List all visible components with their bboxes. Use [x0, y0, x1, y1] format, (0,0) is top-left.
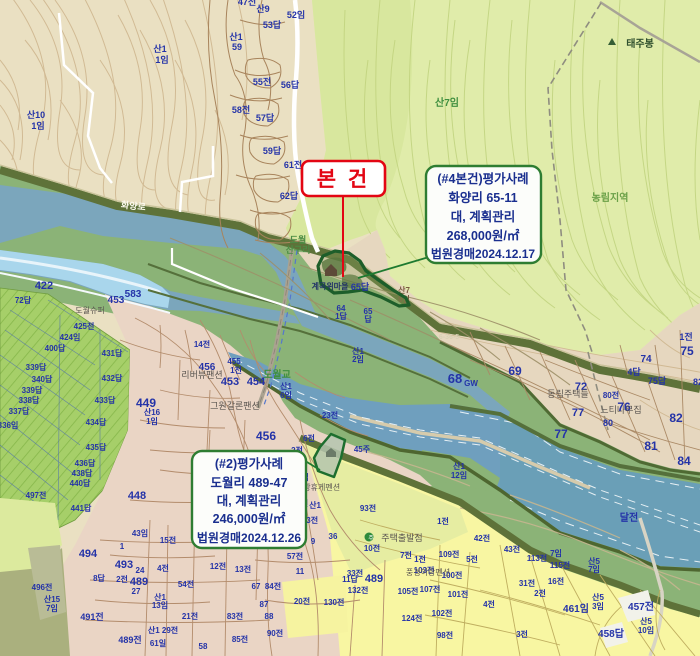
svg-text:산1: 산1 [229, 31, 242, 42]
svg-text:101전: 101전 [448, 589, 469, 599]
svg-text:(#4본건)평가사례: (#4본건)평가사례 [437, 171, 528, 186]
svg-text:31전: 31전 [519, 578, 535, 588]
svg-text:42전: 42전 [474, 533, 490, 543]
svg-text:43전: 43전 [504, 544, 520, 554]
svg-text:84전: 84전 [265, 581, 281, 591]
svg-text:69: 69 [508, 364, 522, 378]
svg-text:82: 82 [693, 377, 700, 387]
svg-text:434답: 434답 [86, 417, 107, 427]
svg-text:58: 58 [199, 642, 208, 651]
svg-text:2임: 2임 [352, 354, 364, 364]
svg-text:457전: 457전 [628, 600, 654, 613]
svg-text:1전: 1전 [679, 331, 692, 342]
svg-text:61일: 61일 [150, 638, 166, 648]
svg-text:8답: 8답 [93, 573, 105, 583]
svg-text:491전: 491전 [80, 611, 103, 622]
svg-text:계곡위마을: 계곡위마을 [312, 281, 349, 291]
svg-text:45주: 45주 [354, 445, 371, 454]
svg-text:497전: 497전 [26, 490, 47, 500]
svg-text:도월교: 도월교 [263, 369, 291, 381]
svg-text:431답: 431답 [102, 348, 123, 358]
svg-text:68: 68 [448, 371, 462, 386]
svg-text:438답: 438답 [72, 468, 93, 478]
svg-text:도월리 489-47: 도월리 489-47 [211, 475, 288, 490]
svg-text:12임: 12임 [451, 470, 467, 480]
svg-text:(#2)평가사례: (#2)평가사례 [215, 456, 283, 471]
svg-text:82: 82 [669, 411, 683, 425]
svg-text:43임: 43임 [132, 528, 148, 538]
svg-text:9: 9 [311, 537, 316, 546]
svg-text:268,000원/㎡: 268,000원/㎡ [447, 228, 520, 243]
svg-text:336임: 336임 [0, 420, 18, 430]
svg-text:산16: 산16 [144, 407, 161, 417]
svg-text:달전: 달전 [620, 511, 638, 524]
svg-text:105전: 105전 [398, 586, 419, 596]
svg-text:산구리: 산구리 [286, 244, 311, 255]
svg-text:7임: 7임 [588, 564, 600, 574]
svg-text:36: 36 [329, 532, 338, 541]
svg-text:74: 74 [640, 354, 652, 365]
svg-text:83전: 83전 [227, 611, 243, 621]
svg-text:80전: 80전 [603, 390, 619, 400]
svg-text:2전: 2전 [534, 588, 546, 598]
svg-text:1임: 1임 [155, 54, 168, 65]
svg-text:3전: 3전 [516, 629, 528, 639]
svg-text:246,000원/㎡: 246,000원/㎡ [213, 511, 286, 526]
svg-text:107전: 107전 [420, 584, 441, 594]
svg-text:85전: 85전 [232, 634, 248, 644]
svg-text:432답: 432답 [102, 373, 123, 383]
svg-text:GW: GW [464, 379, 478, 388]
svg-text:496전: 496전 [32, 582, 53, 592]
svg-text:400답: 400답 [45, 343, 66, 353]
svg-text:453: 453 [221, 376, 239, 388]
svg-text:태주봉: 태주봉 [626, 37, 654, 50]
svg-text:461임: 461임 [563, 602, 589, 615]
svg-text:57전: 57전 [287, 551, 303, 561]
svg-text:493: 493 [115, 559, 133, 571]
svg-text:57답: 57답 [256, 112, 275, 123]
svg-text:88: 88 [265, 612, 274, 621]
svg-text:124전: 124전 [402, 613, 423, 623]
svg-text:337답: 337답 [9, 406, 30, 416]
svg-text:62답: 62답 [280, 190, 299, 201]
svg-text:느티나무집: 느티나무집 [600, 404, 641, 415]
svg-text:453: 453 [108, 295, 125, 306]
svg-text:27: 27 [132, 587, 141, 596]
svg-text:77: 77 [554, 427, 568, 441]
svg-text:산10: 산10 [27, 109, 45, 120]
svg-text:339답: 339답 [22, 385, 43, 395]
svg-text:10임: 10임 [638, 625, 654, 635]
svg-text:338답: 338답 [19, 395, 40, 405]
svg-text:20전: 20전 [294, 596, 310, 606]
svg-text:84: 84 [677, 454, 691, 468]
svg-text:12전: 12전 [210, 561, 226, 571]
svg-text:6-36-5: 6-36-5 [439, 334, 459, 341]
svg-text:425전: 425전 [74, 321, 95, 331]
svg-text:2전: 2전 [116, 574, 128, 584]
svg-text:1전: 1전 [230, 365, 242, 375]
svg-text:10전: 10전 [364, 543, 380, 553]
svg-text:81: 81 [644, 439, 658, 453]
svg-text:1: 1 [120, 542, 125, 551]
svg-text:80: 80 [603, 418, 613, 428]
svg-text:도월슈퍼: 도월슈퍼 [75, 305, 104, 315]
svg-text:448: 448 [128, 490, 146, 502]
svg-text:도월: 도월 [290, 234, 307, 245]
svg-text:주택출발점: 주택출발점 [381, 532, 422, 543]
svg-text:1전: 1전 [437, 516, 449, 526]
svg-text:93전: 93전 [360, 503, 376, 513]
svg-text:대, 계획관리: 대, 계획관리 [217, 493, 281, 508]
svg-text:5전: 5전 [466, 554, 478, 564]
svg-text:산1 29전: 산1 29전 [148, 625, 178, 635]
svg-text:4답: 4답 [627, 366, 641, 377]
svg-text:그원갈론팬션: 그원갈론팬션 [210, 401, 260, 411]
svg-text:13전: 13전 [235, 564, 251, 574]
svg-text:산5: 산5 [592, 592, 604, 602]
svg-text:산7임: 산7임 [435, 96, 459, 109]
svg-text:52임: 52임 [287, 9, 305, 20]
svg-text:6전: 6전 [303, 433, 315, 443]
svg-text:리버뷰팬션: 리버뷰팬션 [181, 370, 222, 380]
svg-text:본 건: 본 건 [317, 168, 370, 191]
svg-text:456: 456 [256, 429, 276, 443]
svg-text:14전: 14전 [194, 339, 210, 349]
svg-text:422: 422 [35, 280, 53, 292]
svg-text:산1: 산1 [280, 381, 292, 391]
svg-text:455: 455 [227, 357, 241, 366]
svg-text:494: 494 [79, 548, 98, 560]
svg-text:동림주택들: 동림주택들 [547, 388, 588, 399]
svg-text:화양리 65-11: 화양리 65-11 [448, 190, 517, 205]
svg-text:산15: 산15 [44, 594, 61, 604]
svg-text:583: 583 [125, 289, 142, 300]
svg-text:58전: 58전 [232, 104, 250, 115]
svg-text:340답: 340답 [32, 374, 53, 384]
svg-text:농림지역: 농림지역 [592, 191, 629, 204]
svg-text:130전: 130전 [324, 597, 345, 607]
svg-text:33전: 33전 [347, 568, 363, 578]
svg-text:102전: 102전 [432, 608, 453, 618]
svg-text:4전: 4전 [483, 599, 495, 609]
svg-text:59: 59 [232, 42, 242, 52]
svg-text:61전: 61전 [284, 159, 302, 170]
svg-text:풍경이랑펜션: 풍경이랑펜션 [406, 567, 450, 577]
svg-text:435답: 435답 [86, 442, 107, 452]
svg-text:법원경매2024.12.26: 법원경매2024.12.26 [197, 530, 302, 545]
svg-text:424임: 424임 [60, 332, 81, 342]
svg-text:489전: 489전 [118, 634, 141, 645]
svg-text:90전: 90전 [267, 628, 283, 638]
svg-text:1답: 1답 [335, 311, 347, 321]
svg-text:109전: 109전 [439, 549, 460, 559]
svg-text:7전: 7전 [400, 550, 412, 560]
svg-text:65답: 65답 [351, 281, 370, 292]
svg-text:답: 답 [364, 314, 372, 324]
svg-text:441답: 441답 [71, 503, 92, 513]
svg-text:454: 454 [247, 376, 266, 388]
svg-text:산1: 산1 [453, 461, 465, 471]
svg-text:1전: 1전 [414, 554, 426, 564]
svg-text:433답: 433답 [95, 395, 116, 405]
svg-text:산1: 산1 [153, 43, 166, 54]
svg-text:54전: 54전 [178, 579, 194, 589]
svg-text:1임: 1임 [31, 120, 44, 131]
svg-text:56답: 56답 [281, 79, 300, 90]
svg-text:주: 주 [368, 535, 374, 542]
svg-text:59답: 59답 [263, 145, 282, 156]
svg-text:98전: 98전 [437, 630, 453, 640]
svg-text:7임: 7임 [46, 603, 58, 613]
svg-text:55전: 55전 [253, 76, 271, 87]
svg-text:87: 87 [260, 600, 269, 609]
svg-text:132전: 132전 [348, 585, 369, 595]
svg-text:16전: 16전 [548, 576, 564, 586]
svg-text:436답: 436답 [75, 458, 96, 468]
svg-text:3임: 3임 [592, 601, 604, 611]
svg-text:75답: 75답 [648, 375, 667, 386]
svg-text:11: 11 [296, 567, 305, 576]
svg-text:1임: 1임 [146, 416, 158, 426]
svg-text:산5: 산5 [640, 616, 652, 626]
svg-text:산9: 산9 [256, 3, 269, 14]
svg-text:21전: 21전 [182, 611, 198, 621]
svg-text:77: 77 [572, 407, 584, 419]
svg-text:53답: 53답 [263, 19, 282, 30]
svg-text:6임: 6임 [280, 390, 292, 400]
svg-text:13임: 13임 [152, 600, 168, 610]
svg-text:72답: 72답 [15, 295, 32, 305]
svg-text:339답: 339답 [26, 362, 47, 372]
svg-text:47전: 47전 [238, 0, 256, 7]
svg-text:440답: 440답 [70, 478, 91, 488]
svg-text:67: 67 [252, 582, 261, 591]
svg-text:113전: 113전 [527, 553, 547, 563]
svg-text:7임: 7임 [550, 548, 562, 558]
svg-text:115전: 115전 [550, 560, 570, 570]
svg-text:458답: 458답 [598, 628, 625, 640]
svg-text:대, 계획관리: 대, 계획관리 [451, 209, 515, 224]
svg-text:75: 75 [680, 344, 694, 358]
svg-text:489: 489 [365, 573, 383, 585]
svg-text:법원경매2024.12.17: 법원경매2024.12.17 [431, 246, 536, 261]
svg-text:4전: 4전 [157, 563, 169, 573]
svg-text:산1: 산1 [309, 500, 321, 510]
svg-text:24: 24 [136, 566, 145, 575]
svg-text:23전: 23전 [322, 410, 338, 420]
svg-text:15전: 15전 [160, 535, 176, 545]
